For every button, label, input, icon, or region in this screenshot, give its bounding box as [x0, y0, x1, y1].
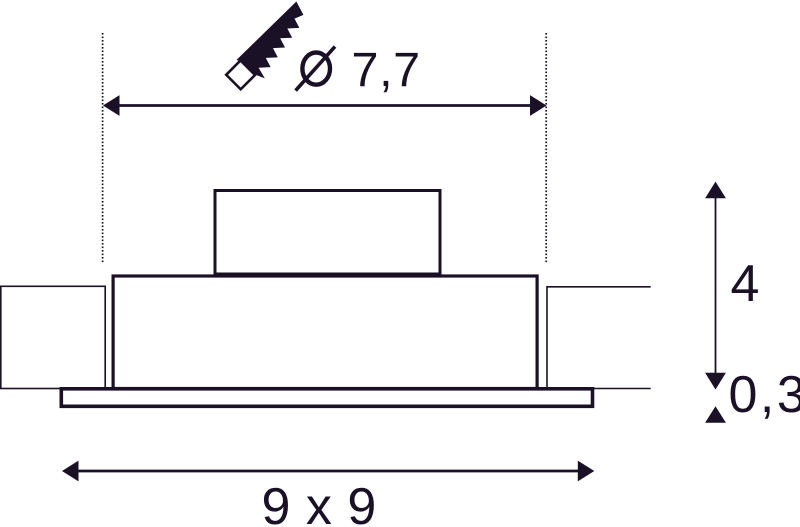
- svg-text:0,3: 0,3: [729, 366, 800, 424]
- svg-text:7,7: 7,7: [352, 43, 421, 97]
- svg-text:4: 4: [731, 255, 760, 313]
- svg-text:9 x 9: 9 x 9: [262, 478, 377, 527]
